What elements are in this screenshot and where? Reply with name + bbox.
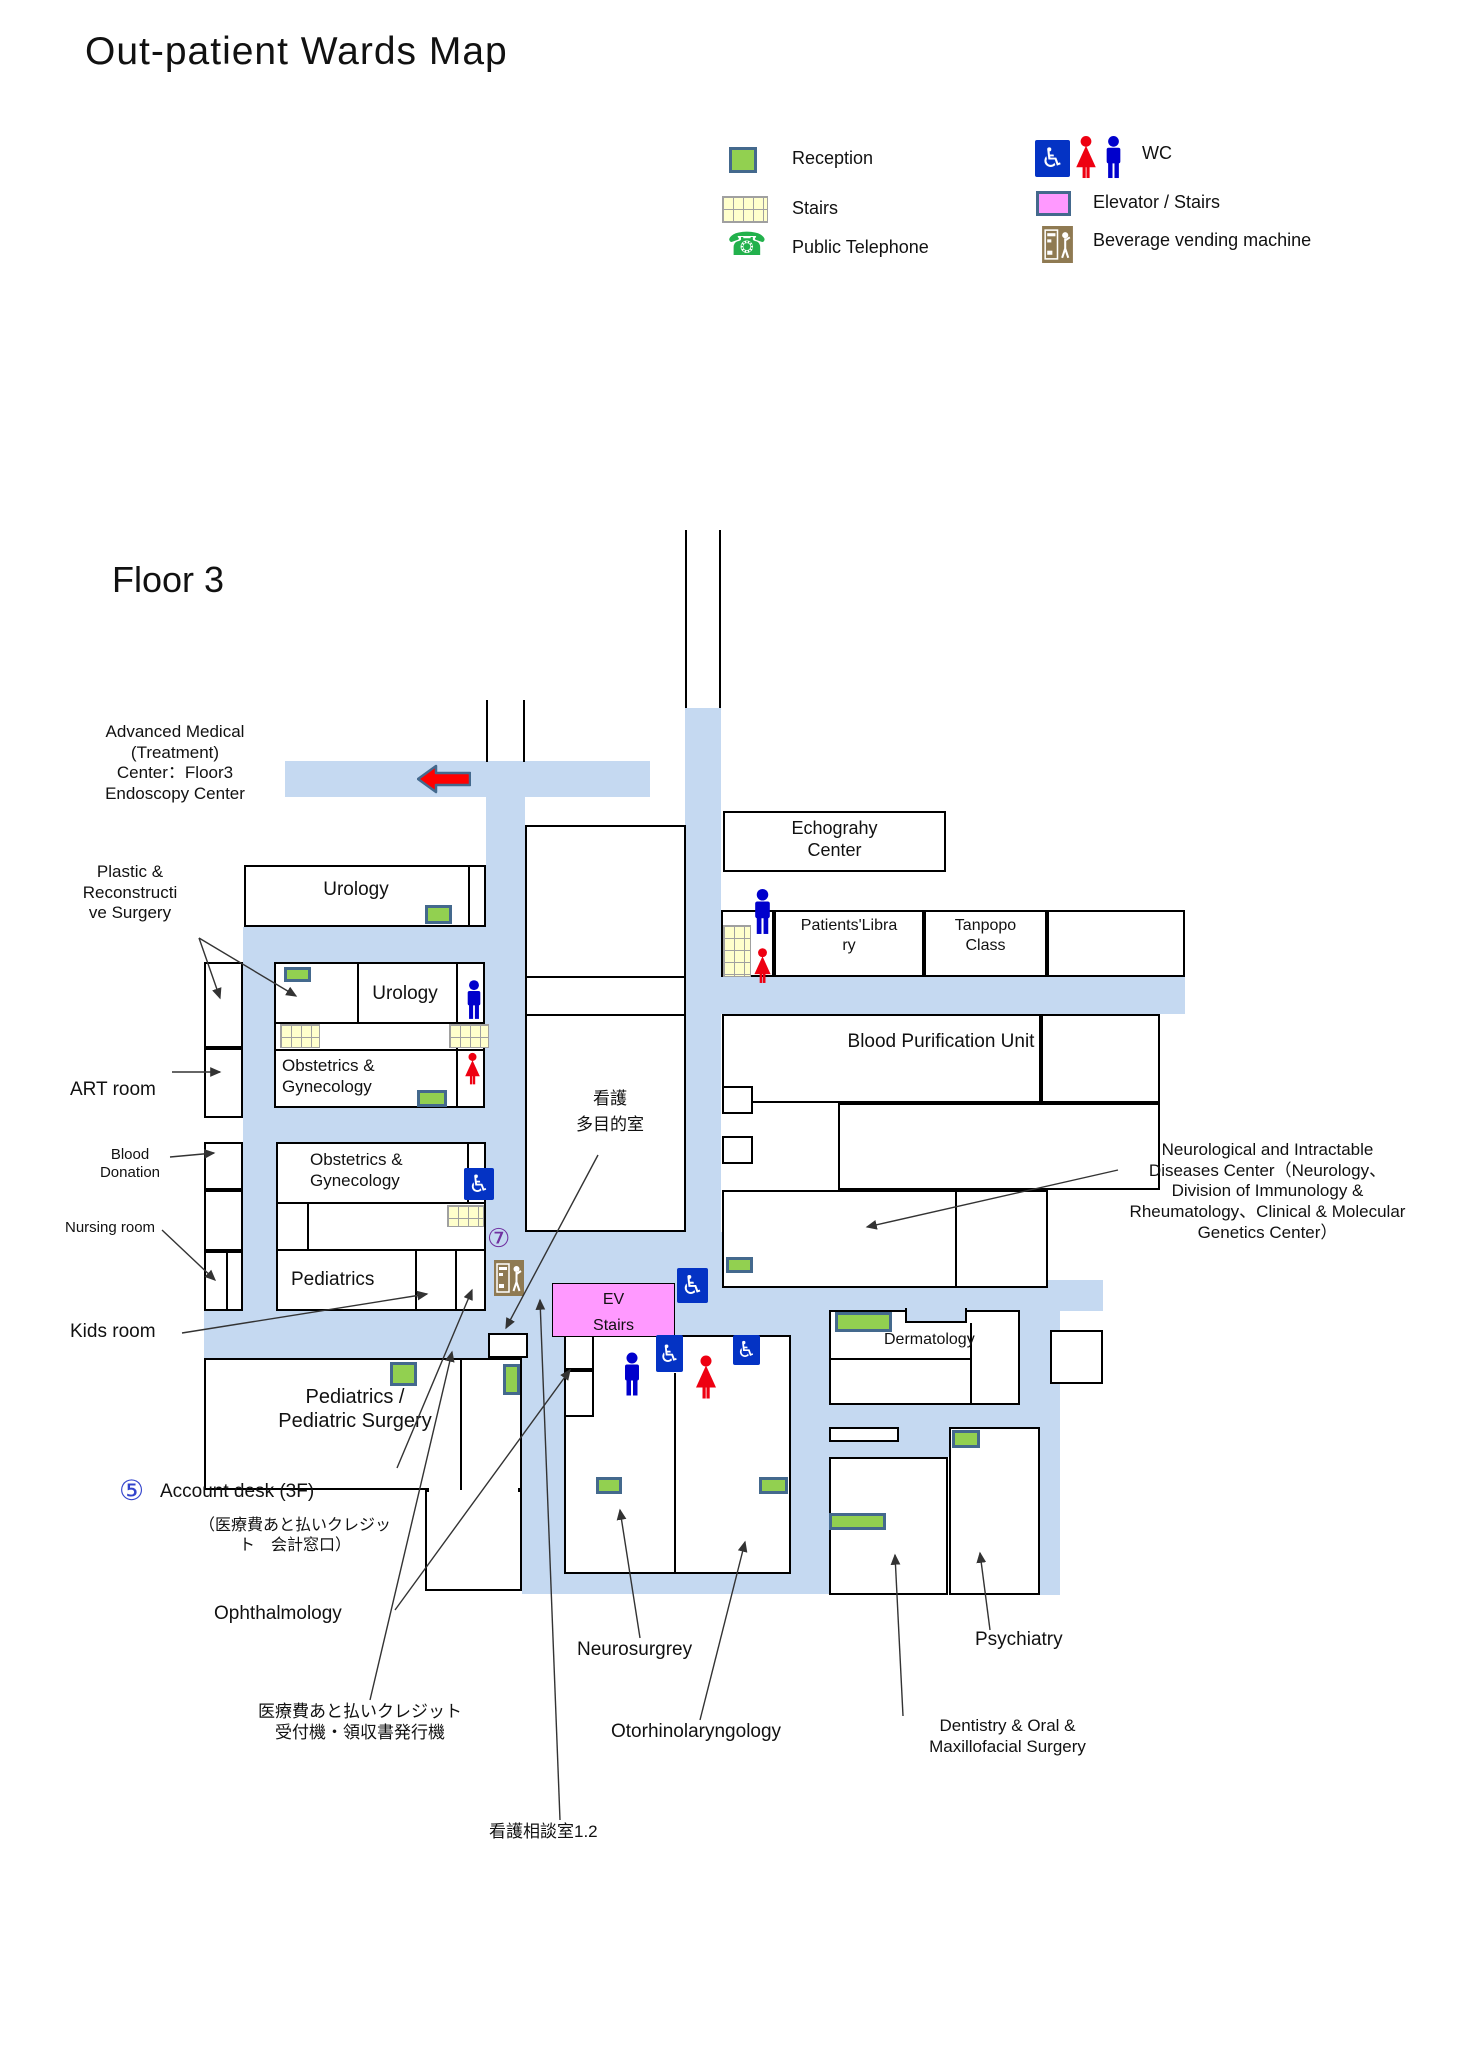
room-left-1 <box>204 962 243 1048</box>
reception-icon <box>759 1477 788 1494</box>
room-strip <box>829 1427 899 1442</box>
legend-reception-label: Reception <box>792 148 873 170</box>
room-left-5-nursing <box>204 1251 243 1311</box>
circle5-marker: ⑤ <box>119 1474 144 1507</box>
wall <box>685 530 687 708</box>
label-nursing-consult: 看護相談室1.2 <box>489 1822 598 1843</box>
legend-stairs-icon <box>722 196 768 223</box>
room-neuro-lower <box>722 1190 1048 1288</box>
label-kids-room: Kids room <box>70 1320 156 1343</box>
room-small-box-1 <box>722 1086 753 1114</box>
legend-vending-icon <box>1042 226 1073 263</box>
wall <box>468 866 470 926</box>
reception-icon <box>390 1362 417 1386</box>
label-otorhinolaryngology: Otorhinolaryngology <box>611 1720 781 1743</box>
page-title: Out-patient Wards Map <box>85 28 508 76</box>
stairs-icon <box>447 1205 484 1227</box>
reception-icon <box>835 1312 892 1332</box>
outpatient-wards-map-page: Out-patient Wards Map Reception Stairs ☎… <box>0 0 1470 2066</box>
wheelchair-icon: ♿ <box>733 1335 760 1365</box>
circle7-marker: ⑦ <box>487 1224 510 1254</box>
wall <box>719 530 721 708</box>
legend-wheelchair-icon: ♿ <box>1035 140 1070 177</box>
room-psychiatry <box>949 1427 1040 1595</box>
ev-stairs-box: EV Stairs <box>552 1283 675 1337</box>
reception-icon <box>952 1430 980 1448</box>
room-left-3-blood-donation <box>204 1142 243 1190</box>
wall <box>226 1251 228 1311</box>
reception-icon <box>284 967 311 982</box>
reception-icon <box>417 1090 447 1107</box>
wall <box>829 1358 970 1360</box>
wall <box>955 1190 957 1288</box>
label-credit-machine: 医療費あと払いクレジット 受付機・領収書発行機 <box>215 1702 505 1743</box>
label-neurosurgery: Neurosurgrey <box>577 1638 692 1661</box>
man-icon <box>752 889 773 935</box>
label-blood-donation: Blood Donation <box>88 1146 172 1183</box>
reception-icon <box>425 905 452 924</box>
corridor-psych-strip <box>1040 1457 1060 1595</box>
legend-telephone-label: Public Telephone <box>792 237 929 259</box>
wall <box>415 1250 417 1311</box>
wc-block-box2 <box>564 1370 594 1417</box>
wall <box>307 1202 309 1249</box>
wall <box>455 1250 457 1311</box>
corridor-bottom-band <box>522 1574 831 1594</box>
wall <box>274 1049 485 1051</box>
room-label-tanpopo: Tanpopo Class <box>924 916 1047 955</box>
corridor-v2 <box>486 761 525 927</box>
wall <box>523 700 525 762</box>
corridor-left-channel <box>522 1358 564 1574</box>
label-art-room: ART room <box>70 1078 156 1101</box>
reception-icon <box>726 1257 753 1273</box>
stairs-icon <box>723 925 751 977</box>
legend-reception-icon <box>729 147 757 173</box>
stairs-icon <box>449 1024 489 1048</box>
room-bpu-right <box>1041 1014 1160 1103</box>
room-right-of-derm <box>1050 1330 1103 1384</box>
legend-man-icon <box>1102 136 1125 179</box>
room-small-box-2 <box>722 1136 753 1164</box>
legend-elevator-icon <box>1036 191 1071 216</box>
legend-stairs-label: Stairs <box>792 198 838 220</box>
reception-icon <box>829 1513 886 1530</box>
room-label-dermatology: Dermatology <box>884 1330 975 1350</box>
room-label-urology-inner: Urology <box>357 982 453 1005</box>
room-label-pediatrics: Pediatrics <box>291 1268 374 1291</box>
pedsurg-join-patch <box>429 1488 518 1492</box>
label-account-desk: Account desk (3F) <box>160 1480 314 1503</box>
man-icon <box>465 979 483 1021</box>
room-bpu <box>722 1014 1041 1103</box>
man-icon <box>622 1352 642 1397</box>
label-ophthalmology: Ophthalmology <box>214 1602 342 1625</box>
wall <box>525 1014 686 1016</box>
label-psychiatry: Psychiatry <box>975 1628 1063 1651</box>
woman-icon <box>463 1049 482 1089</box>
room-left-2-art <box>204 1048 243 1118</box>
wheelchair-icon: ♿ <box>656 1335 683 1372</box>
room-left-4 <box>204 1190 243 1251</box>
room-label-obgyn2: Obstetrics & Gynecology <box>310 1150 403 1191</box>
room-kango-block <box>525 825 686 1232</box>
stairs-icon <box>280 1024 320 1048</box>
wall <box>486 700 488 762</box>
room-label-bpu: Blood Purification Unit <box>722 1030 1160 1053</box>
legend-elevator-label: Elevator / Stairs <box>1093 192 1220 214</box>
dermatology-notch <box>905 1308 967 1323</box>
reception-icon <box>503 1364 520 1395</box>
label-account-sub: （医療費あと払いクレジッ ト 会計窓口） <box>150 1516 440 1555</box>
wc-block-box1 <box>564 1335 594 1370</box>
wheelchair-icon: ♿ <box>464 1168 494 1200</box>
room-label-echography: Echograhy Center <box>723 818 946 862</box>
room-label-pedsurg: Pediatrics / Pediatric Surgery <box>240 1385 470 1434</box>
legend-woman-icon <box>1072 136 1100 179</box>
floor-heading: Floor 3 <box>112 558 224 602</box>
room-label-obgyn1: Obstetrics & Gynecology <box>282 1056 375 1097</box>
wheelchair-icon: ♿ <box>677 1268 708 1303</box>
label-advanced-medical: Advanced Medical (Treatment) Center：Floo… <box>60 722 290 805</box>
red-direction-arrow <box>417 764 471 794</box>
legend-wc-label: WC <box>1142 143 1172 165</box>
woman-icon <box>752 943 773 989</box>
vending-machine-icon <box>489 1260 529 1296</box>
public-telephone-icon: ☎ <box>727 228 767 260</box>
label-neuro-center: Neurological and Intractable Diseases Ce… <box>1080 1140 1455 1244</box>
corridor-v1 <box>685 708 721 1232</box>
room-label-library: Patients'Libra ry <box>774 916 924 955</box>
corridor-right-upper <box>721 977 1185 1014</box>
room-label-urology-top: Urology <box>276 878 436 901</box>
room-label-kango: 看護 多目的室 <box>555 1086 665 1137</box>
label-nursing-room: Nursing room <box>65 1219 155 1237</box>
reception-icon <box>596 1477 622 1494</box>
legend-vending-label: Beverage vending machine <box>1093 230 1311 252</box>
wall <box>674 1373 676 1574</box>
wall <box>525 976 686 978</box>
room-right-band <box>1047 910 1185 977</box>
label-plastic-surgery: Plastic & Reconstructi ve Surgery <box>55 862 205 924</box>
label-dentistry: Dentistry & Oral & Maxillofacial Surgery <box>895 1716 1120 1757</box>
woman-icon <box>693 1355 719 1400</box>
room-corridor-small-box <box>488 1333 528 1358</box>
